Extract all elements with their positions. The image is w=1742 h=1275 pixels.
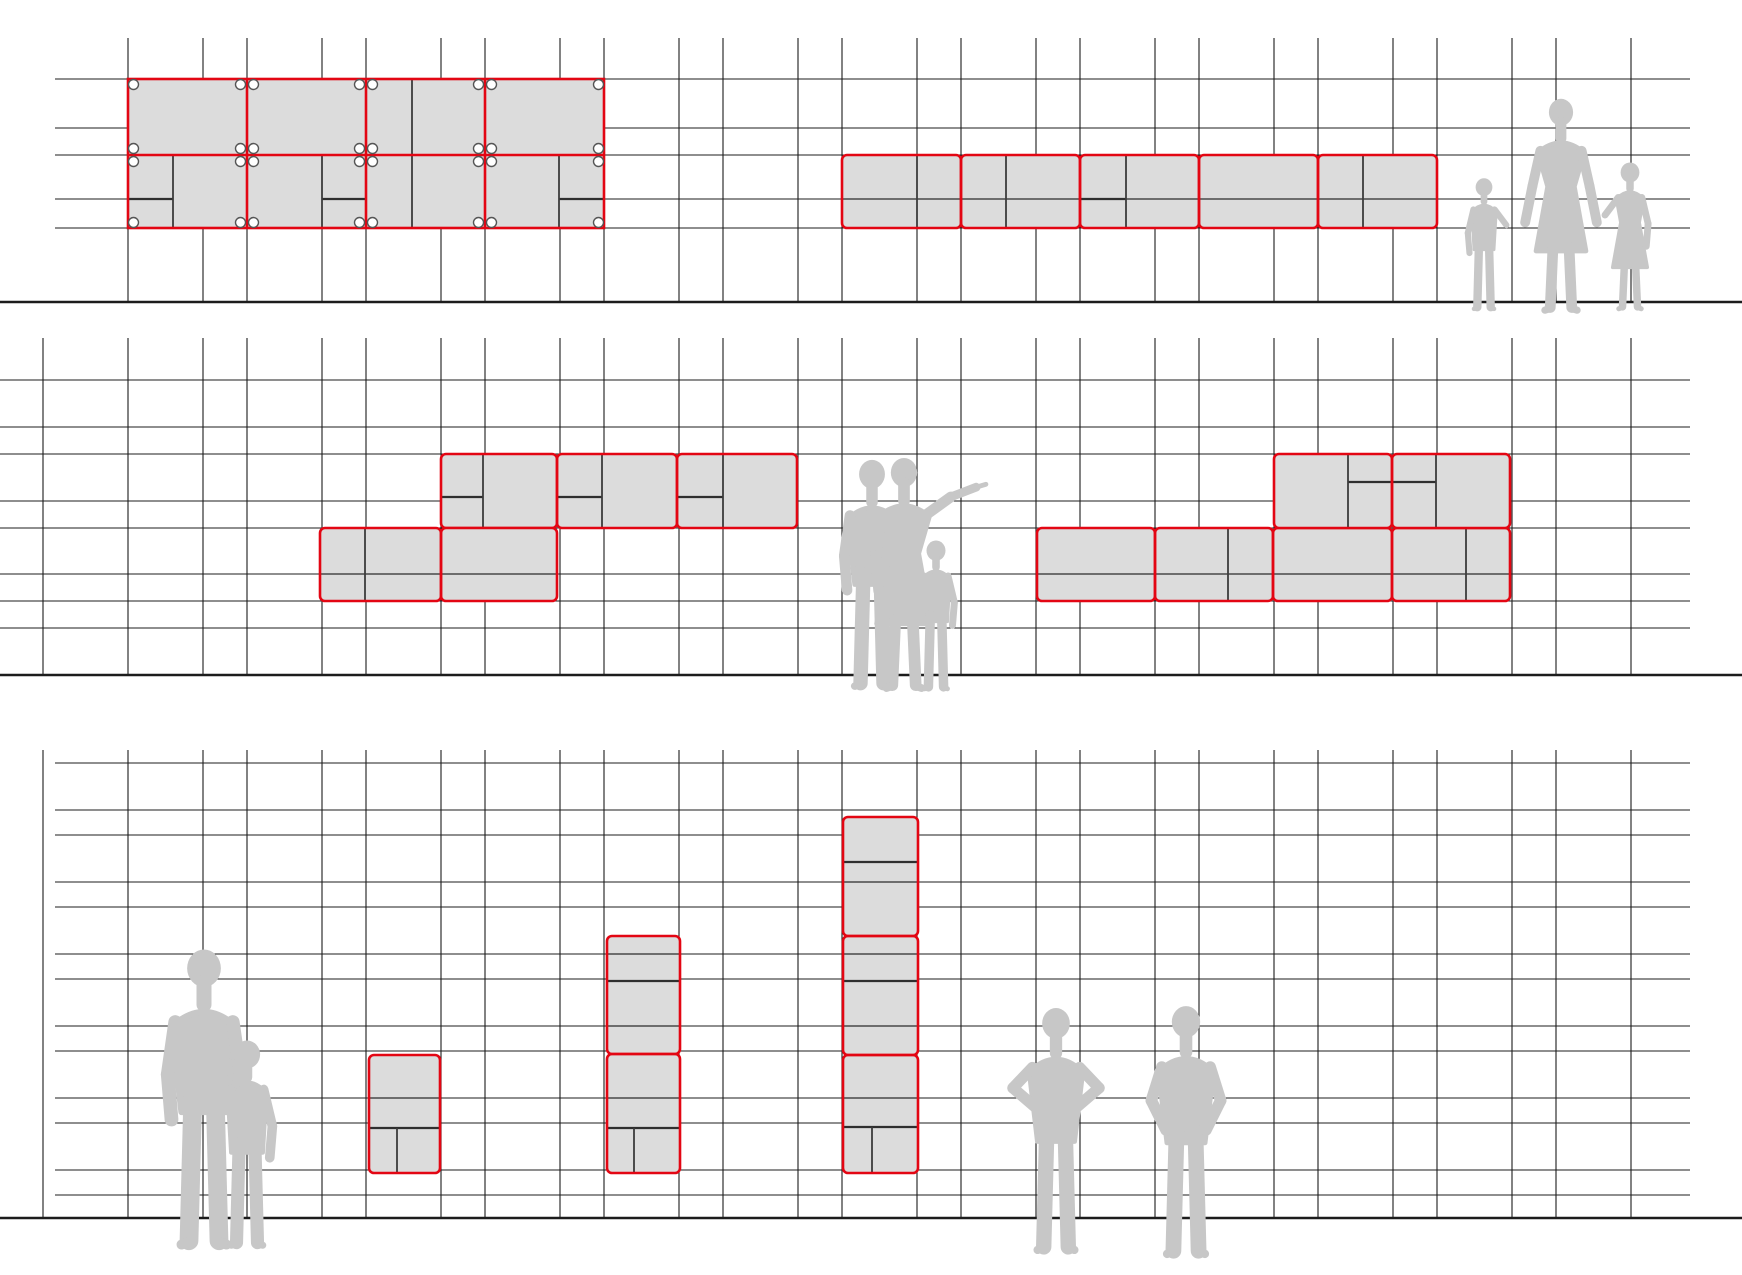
connector-ball [249, 218, 259, 228]
module-fill [557, 454, 677, 528]
connector-ball [487, 80, 497, 90]
figure-limb [182, 1242, 190, 1245]
module-fill [320, 528, 441, 601]
figure-limb [1619, 308, 1623, 309]
tower-two [607, 936, 680, 1173]
figure-limb [1199, 1252, 1205, 1254]
figure-limb [892, 620, 895, 685]
connector-ball [355, 144, 365, 154]
connector-ball [487, 218, 497, 228]
module-fill [1037, 528, 1155, 601]
connector-ball [236, 218, 246, 228]
connector-ball [487, 157, 497, 167]
elevation-sheet [0, 0, 1742, 1275]
connector-ball [236, 80, 246, 90]
connector-ball [594, 80, 604, 90]
figure-limb [237, 1144, 240, 1243]
connector-ball [594, 144, 604, 154]
module-fill [843, 817, 918, 936]
module-fill [1318, 155, 1437, 228]
module-fill [842, 155, 961, 228]
connector-ball [129, 218, 139, 228]
figure-limb [976, 484, 986, 487]
connector-ball [249, 157, 259, 167]
connector-ball [368, 218, 378, 228]
figure-limb [1038, 1248, 1044, 1250]
figure-limb [1173, 1132, 1176, 1251]
connector-ball [474, 80, 484, 90]
figure-limb [952, 603, 954, 626]
figure-limb [1550, 248, 1553, 308]
figure-limb [1044, 1131, 1047, 1247]
module-fill [1274, 454, 1392, 528]
module-fill [1392, 454, 1510, 528]
connector-ball [368, 157, 378, 167]
figure-limb [855, 684, 861, 686]
connector-ball [129, 80, 139, 90]
module-fill [369, 1055, 440, 1173]
figure-limb [219, 1242, 227, 1245]
module-fill [441, 454, 557, 528]
figure-limb [1489, 244, 1491, 307]
figure-limb [928, 615, 930, 687]
figure-limb [942, 615, 944, 687]
connector-ball [368, 80, 378, 90]
figure-limb [270, 1126, 273, 1158]
connector-ball [355, 218, 365, 228]
connector-ball [249, 144, 259, 154]
figure-torso [1029, 1059, 1082, 1141]
figure-limb [1590, 187, 1597, 223]
figure-limb [1491, 308, 1494, 309]
connector-ball [474, 157, 484, 167]
figure-limb [1646, 224, 1648, 247]
figure-limb [168, 1075, 172, 1120]
module-fill [961, 155, 1080, 228]
figure-limb [925, 687, 929, 688]
cabinet-ball-system [128, 79, 604, 228]
figure-limb [1167, 1252, 1173, 1254]
module-fill [1199, 155, 1318, 228]
figure-limb [861, 575, 864, 683]
connector-ball [594, 157, 604, 167]
figure-limb [1195, 1132, 1198, 1251]
figure-limb [215, 1100, 219, 1241]
figure-limb [844, 516, 850, 556]
tower-three [843, 817, 918, 1173]
figure-limb [258, 1244, 263, 1246]
tower-one [369, 1055, 440, 1173]
figure-limb [168, 1022, 176, 1075]
figure-limb [189, 1100, 193, 1241]
sideboard-rounded [842, 155, 1437, 228]
module-fill [607, 1054, 680, 1173]
figure-limb [1068, 1248, 1074, 1250]
module-fill [1392, 528, 1510, 601]
figure-limb [886, 686, 892, 688]
figure-limb [876, 555, 879, 590]
mid-left-lower-row [320, 528, 557, 601]
figure-limb [844, 556, 847, 591]
figure-limb [913, 620, 916, 685]
connector-ball [474, 144, 484, 154]
module-fill [843, 1055, 918, 1173]
connector-ball [236, 157, 246, 167]
figure-limb [1474, 308, 1477, 309]
figure-limb [876, 515, 882, 556]
figure-limb [1477, 244, 1479, 307]
mid-right-upper-row [1274, 454, 1510, 528]
connector-ball [474, 218, 484, 228]
figure-limb [255, 1144, 258, 1243]
figure-limb [1525, 187, 1532, 223]
connector-ball [594, 218, 604, 228]
figure-limb [1638, 308, 1642, 309]
connector-ball [487, 144, 497, 154]
module-fill [1273, 528, 1392, 601]
connector-ball [129, 157, 139, 167]
figure-limb [1572, 308, 1577, 310]
figure-limb [1636, 265, 1638, 307]
figure-limb [1623, 265, 1625, 307]
figure-limb [1065, 1131, 1068, 1247]
figure-limb [1545, 308, 1550, 310]
figure-limb [944, 687, 948, 688]
mid-right-lower-row [1037, 528, 1510, 601]
modular-shelving-elevation-diagram [0, 0, 1742, 1275]
connector-ball [355, 80, 365, 90]
connector-ball [355, 157, 365, 167]
connector-ball [249, 80, 259, 90]
connector-ball [129, 144, 139, 154]
figure-limb [1468, 233, 1470, 253]
module-fill [677, 454, 797, 528]
connector-ball [236, 144, 246, 154]
module-fill [1080, 155, 1199, 228]
figure-limb [231, 1244, 236, 1246]
figure-limb [1569, 248, 1572, 308]
connector-ball [368, 144, 378, 154]
module-fill [441, 528, 557, 601]
module-fill [1155, 528, 1273, 601]
figure-limb [916, 686, 922, 688]
